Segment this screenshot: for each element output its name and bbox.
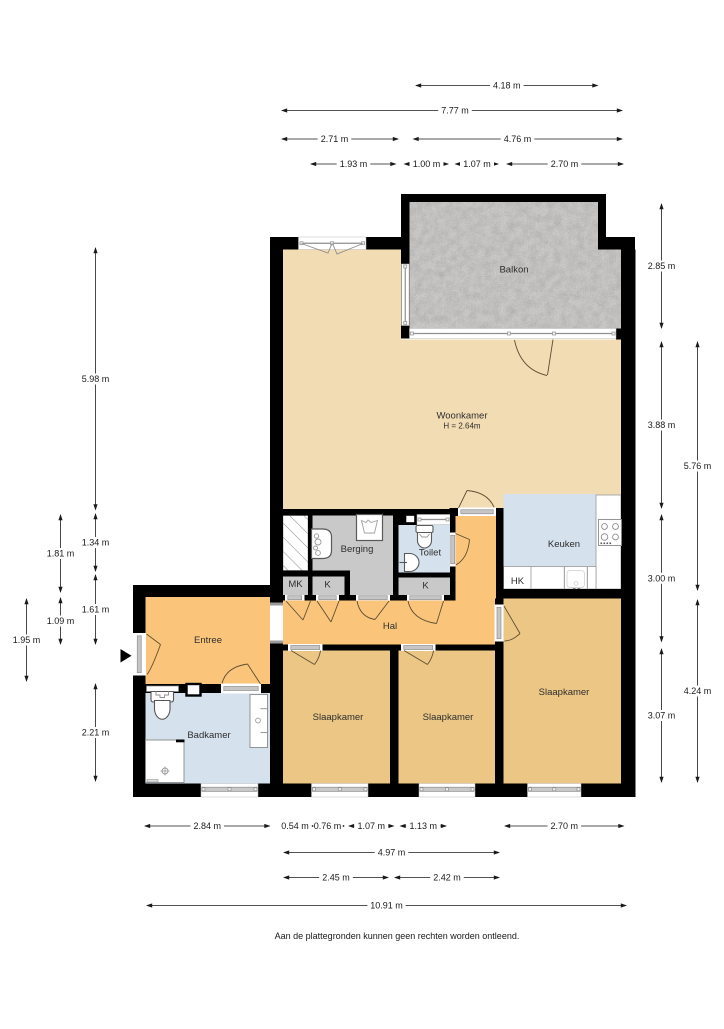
svg-text:Aan de plattegronden kunnen ge: Aan de plattegronden kunnen geen rechten… [275,931,520,941]
svg-text:1.00 m: 1.00 m [413,159,441,169]
svg-text:1.07 m: 1.07 m [463,159,491,169]
svg-text:3.88 m: 3.88 m [648,420,676,430]
svg-text:4.97 m: 4.97 m [378,848,406,858]
svg-text:Slaapkamer: Slaapkamer [539,687,590,698]
svg-text:Slaapkamer: Slaapkamer [423,712,474,723]
svg-text:3.00 m: 3.00 m [648,573,676,583]
svg-text:Entree: Entree [194,635,222,646]
svg-text:1.07 m: 1.07 m [357,821,385,831]
svg-text:Hal: Hal [383,621,397,632]
svg-text:2.70 m: 2.70 m [551,159,579,169]
svg-text:4.18 m: 4.18 m [493,81,521,91]
svg-text:2.71 m: 2.71 m [321,134,349,144]
svg-text:2.85 m: 2.85 m [648,261,676,271]
svg-text:MK: MK [288,579,303,590]
svg-text:1.09 m: 1.09 m [47,616,75,626]
svg-text:H = 2.64m: H = 2.64m [443,422,480,431]
svg-text:HK: HK [511,576,525,587]
svg-text:5.98 m: 5.98 m [82,374,110,384]
svg-text:Woonkamer: Woonkamer [436,411,487,422]
svg-text:1.34 m: 1.34 m [82,538,110,548]
svg-text:1.61 m: 1.61 m [82,605,110,615]
svg-text:7.77 m: 7.77 m [441,106,469,116]
svg-text:Slaapkamer: Slaapkamer [313,712,364,723]
svg-text:2.21 m: 2.21 m [82,728,110,738]
svg-text:1.95 m: 1.95 m [13,635,41,645]
svg-text:10.91 m: 10.91 m [370,901,403,911]
svg-text:Keuken: Keuken [548,539,580,550]
svg-text:0.76 m: 0.76 m [314,821,342,831]
svg-text:Badkamer: Badkamer [187,730,230,741]
svg-text:K: K [422,581,429,592]
svg-text:K: K [324,580,331,591]
svg-text:5.76 m: 5.76 m [684,461,712,471]
svg-text:2.70 m: 2.70 m [550,821,578,831]
svg-text:2.84 m: 2.84 m [193,821,221,831]
svg-text:1.81 m: 1.81 m [47,549,75,559]
svg-text:4.76 m: 4.76 m [504,134,532,144]
svg-text:Berging: Berging [341,544,374,555]
svg-text:2.42 m: 2.42 m [433,873,461,883]
svg-text:1.93 m: 1.93 m [340,159,368,169]
svg-text:Toilet: Toilet [419,548,442,559]
svg-text:1.13 m: 1.13 m [409,821,437,831]
svg-text:Balkon: Balkon [499,265,528,276]
svg-text:4.24 m: 4.24 m [684,686,712,696]
svg-text:3.07 m: 3.07 m [648,711,676,721]
svg-text:0.54 m: 0.54 m [281,821,309,831]
svg-text:2.45 m: 2.45 m [322,873,350,883]
